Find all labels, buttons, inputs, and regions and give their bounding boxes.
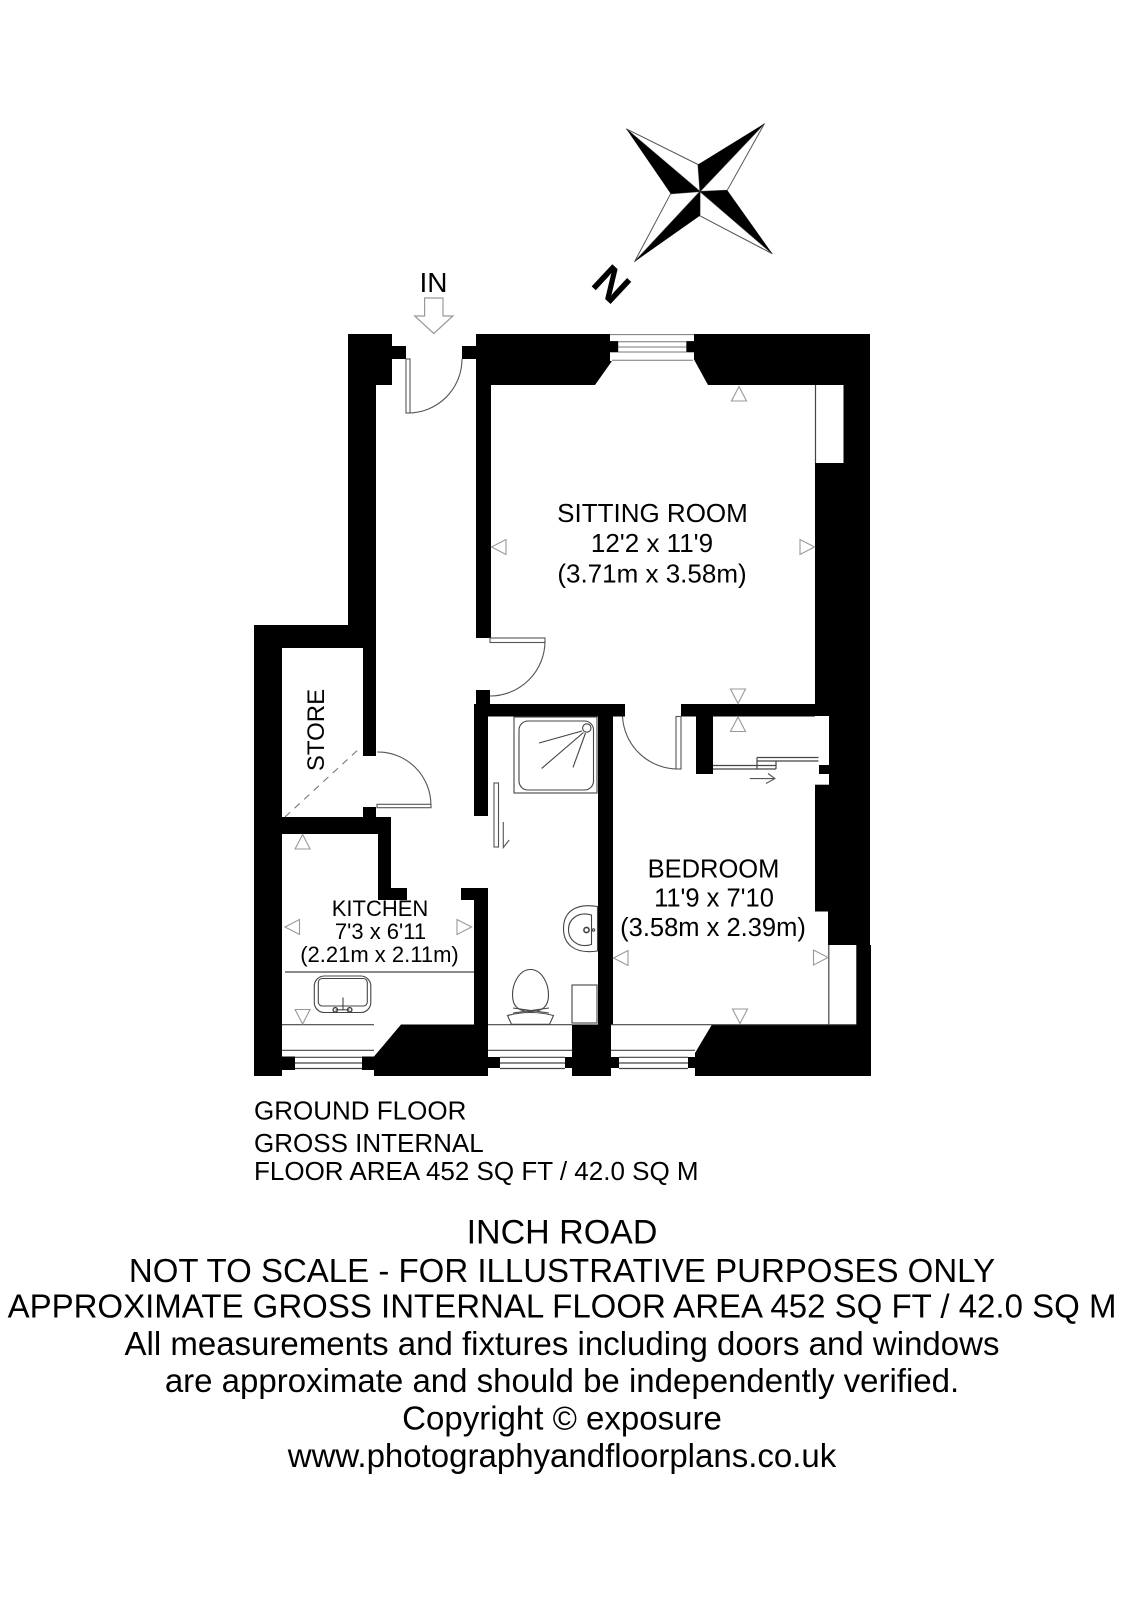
svg-text:KITCHEN: KITCHEN bbox=[332, 896, 429, 921]
svg-text:FLOOR AREA 452 SQ FT / 42.0 SQ: FLOOR AREA 452 SQ FT / 42.0 SQ M bbox=[254, 1156, 699, 1186]
svg-text:STORE: STORE bbox=[303, 689, 330, 771]
svg-text:IN: IN bbox=[420, 267, 448, 298]
svg-text:12'2 x 11'9: 12'2 x 11'9 bbox=[591, 528, 713, 558]
svg-text:(3.58m x 2.39m): (3.58m x 2.39m) bbox=[620, 914, 806, 942]
svg-text:BEDROOM: BEDROOM bbox=[648, 856, 780, 884]
svg-text:INCH ROAD: INCH ROAD bbox=[467, 1214, 658, 1252]
svg-text:Copyright © exposure: Copyright © exposure bbox=[402, 1400, 722, 1437]
svg-text:11'9 x 7'10: 11'9 x 7'10 bbox=[654, 885, 774, 913]
svg-text:7'3 x 6'11: 7'3 x 6'11 bbox=[335, 919, 426, 944]
svg-text:(2.21m x 2.11m): (2.21m x 2.11m) bbox=[300, 942, 459, 967]
svg-text:are approximate and should be: are approximate and should be independen… bbox=[165, 1362, 959, 1399]
svg-text:www.photographyandfloorplans.c: www.photographyandfloorplans.co.uk bbox=[287, 1437, 837, 1474]
svg-text:All measurements and fixtures: All measurements and fixtures including … bbox=[125, 1325, 1000, 1362]
svg-text:SITTING ROOM: SITTING ROOM bbox=[557, 498, 748, 528]
svg-text:APPROXIMATE GROSS INTERNAL FLO: APPROXIMATE GROSS INTERNAL FLOOR AREA 45… bbox=[8, 1288, 1117, 1325]
svg-text:GROUND FLOOR: GROUND FLOOR bbox=[254, 1096, 466, 1126]
svg-text:(3.71m x 3.58m): (3.71m x 3.58m) bbox=[557, 559, 746, 589]
svg-text:GROSS INTERNAL: GROSS INTERNAL bbox=[254, 1128, 484, 1158]
svg-text:NOT TO SCALE - FOR ILLUSTRATIV: NOT TO SCALE - FOR ILLUSTRATIVE PURPOSES… bbox=[129, 1252, 995, 1289]
